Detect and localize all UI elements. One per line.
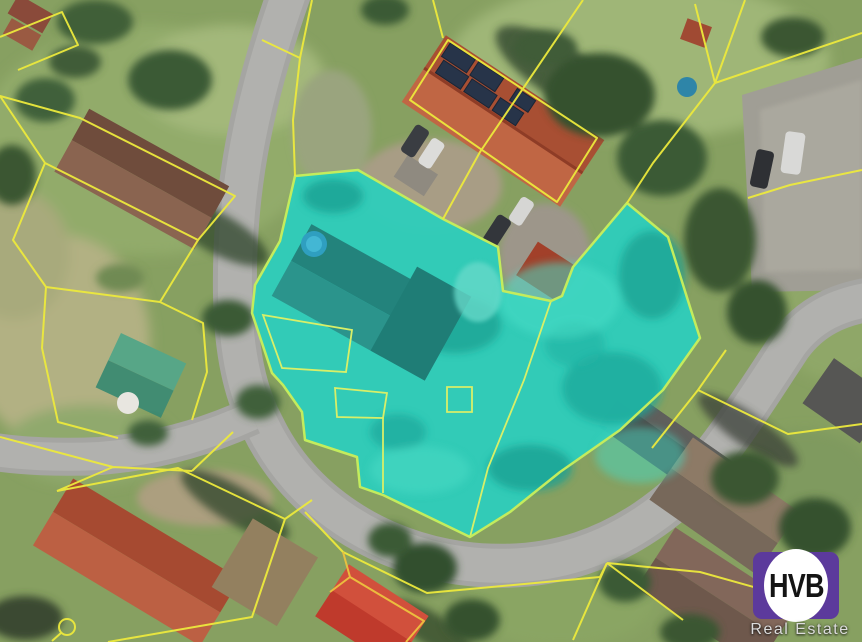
- hvb-logo: HVB Real Estate: [742, 548, 858, 642]
- aerial-map: HVB Real Estate: [0, 0, 862, 642]
- logo-square: HVB: [753, 552, 839, 619]
- tank-white: [117, 392, 139, 414]
- logo-circle: HVB: [764, 549, 828, 622]
- pool-topright: [677, 77, 697, 97]
- logo-subtext: Real Estate: [742, 621, 858, 639]
- map-canvas: [0, 0, 862, 642]
- logo-text: HVB: [769, 567, 824, 605]
